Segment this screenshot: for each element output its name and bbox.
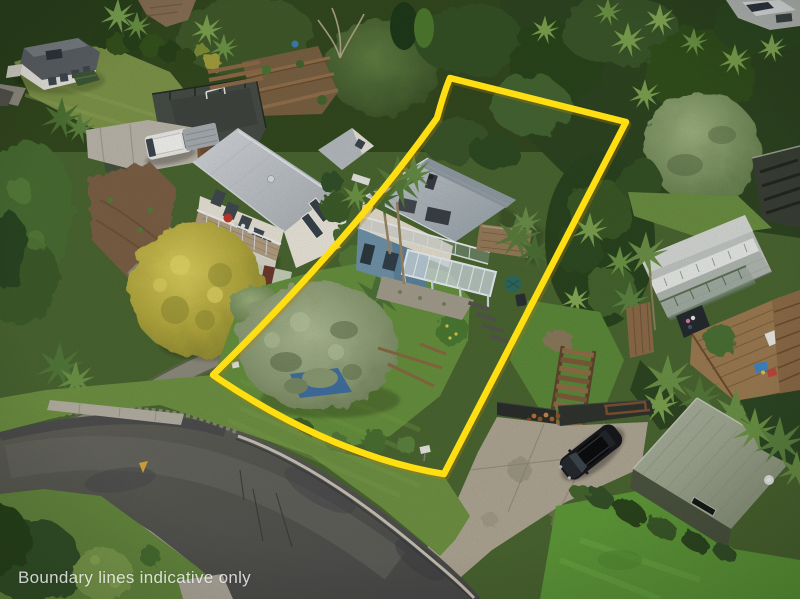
photo-canvas <box>0 0 800 599</box>
watermark-text: Boundary lines indicative only <box>18 568 251 588</box>
vignette <box>0 0 800 599</box>
aerial-photo: Boundary lines indicative only <box>0 0 800 599</box>
